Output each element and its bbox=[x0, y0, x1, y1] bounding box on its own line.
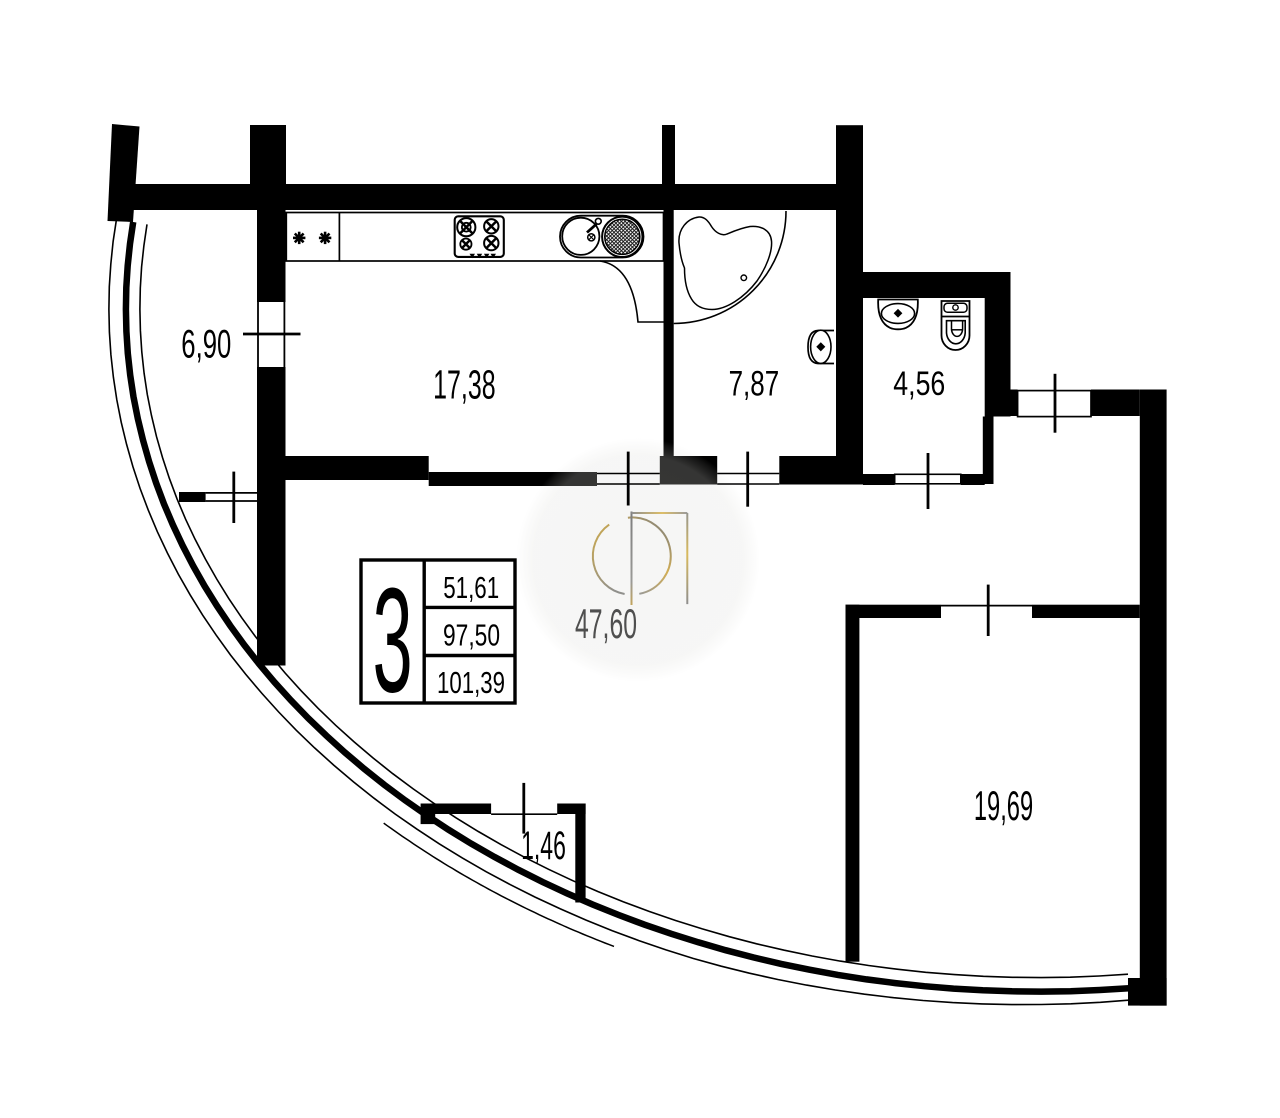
svg-text:47,60: 47,60 bbox=[575, 600, 637, 647]
svg-text:4,56: 4,56 bbox=[893, 365, 945, 403]
svg-text:19,69: 19,69 bbox=[974, 782, 1033, 829]
svg-text:3: 3 bbox=[373, 557, 413, 724]
svg-text:1,46: 1,46 bbox=[521, 824, 566, 868]
svg-text:51,61: 51,61 bbox=[443, 570, 499, 605]
svg-text:6,90: 6,90 bbox=[181, 323, 231, 367]
svg-text:17,38: 17,38 bbox=[433, 362, 496, 408]
svg-text:97,50: 97,50 bbox=[443, 618, 500, 653]
svg-text:101,39: 101,39 bbox=[437, 665, 505, 700]
svg-text:7,87: 7,87 bbox=[729, 363, 780, 403]
